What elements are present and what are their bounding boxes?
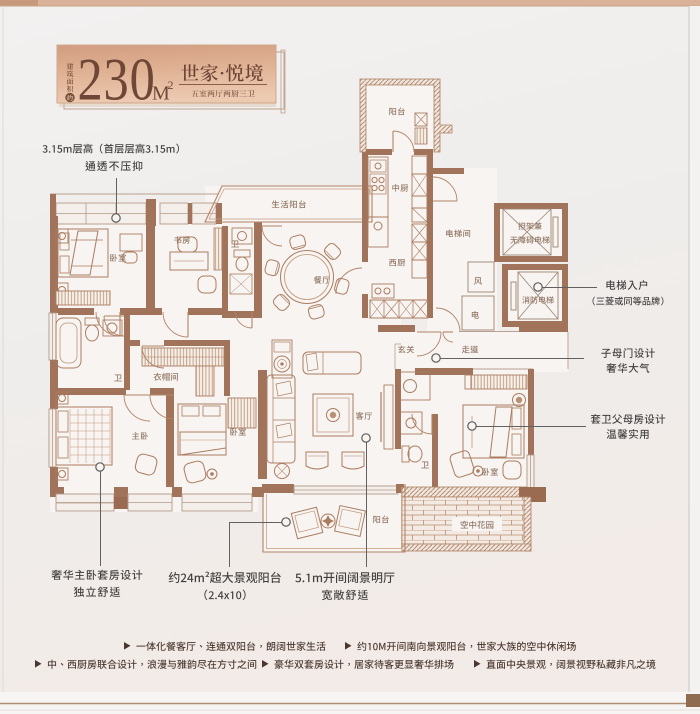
svg-text:230: 230 (78, 46, 156, 112)
svg-text:2: 2 (168, 78, 174, 92)
